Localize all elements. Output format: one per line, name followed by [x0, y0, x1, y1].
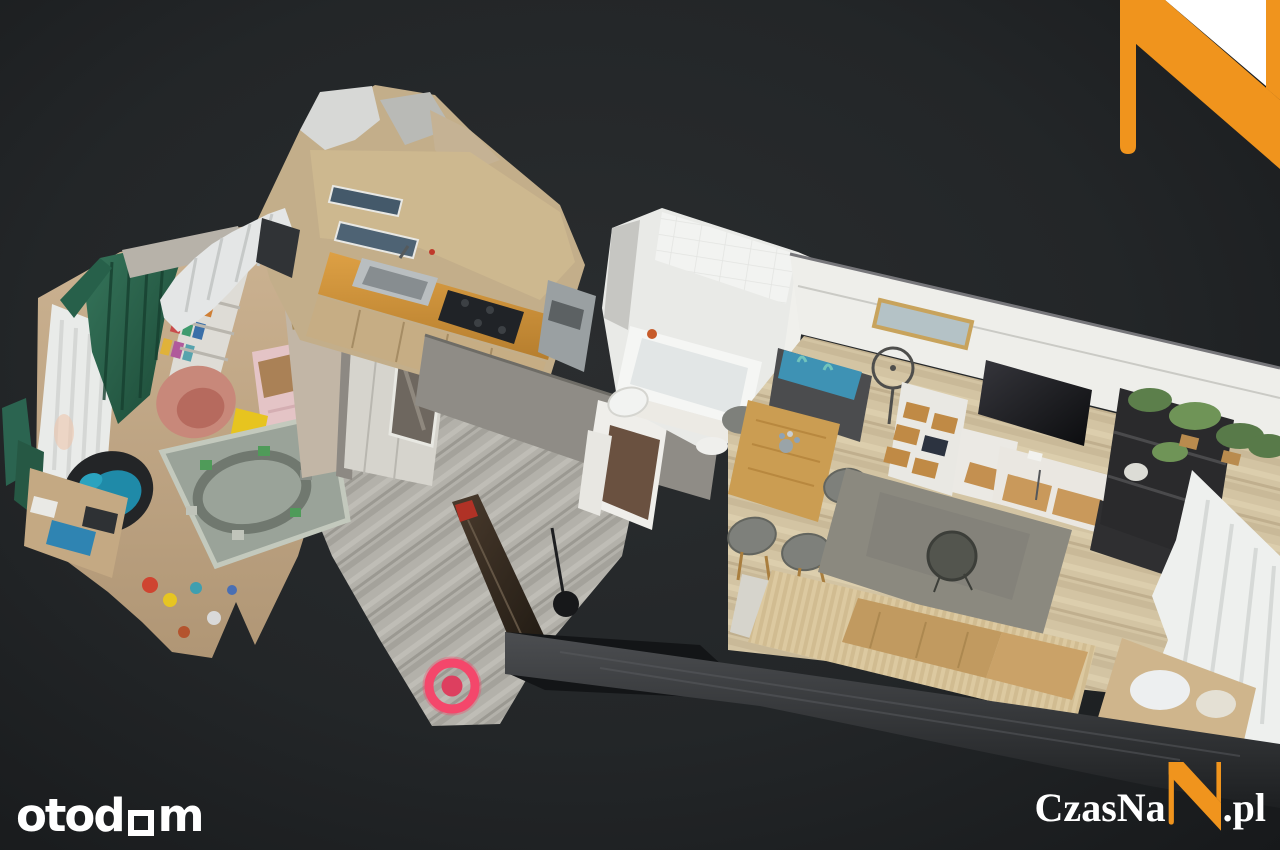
- otodom-watermark: otod m: [16, 793, 202, 838]
- otodom-square-o-glyph: [128, 810, 154, 836]
- otodom-text-suffix: m: [158, 793, 203, 838]
- czasnan-text-prefix: CzasNa: [1035, 788, 1166, 828]
- czasnan-text-suffix: .pl: [1223, 788, 1266, 828]
- corner-brand-n-icon: [1118, 0, 1280, 172]
- viewpoint-marker[interactable]: [424, 658, 480, 714]
- side-table: [928, 532, 976, 580]
- otodom-text-prefix: otod: [16, 793, 124, 838]
- czasnan-watermark: CzasNa .pl: [1035, 762, 1266, 832]
- screenshot-canvas: otod m CzasNa .pl: [0, 0, 1280, 850]
- czasnan-n-icon: [1168, 762, 1221, 832]
- dollhouse-3d-render: [0, 0, 1280, 850]
